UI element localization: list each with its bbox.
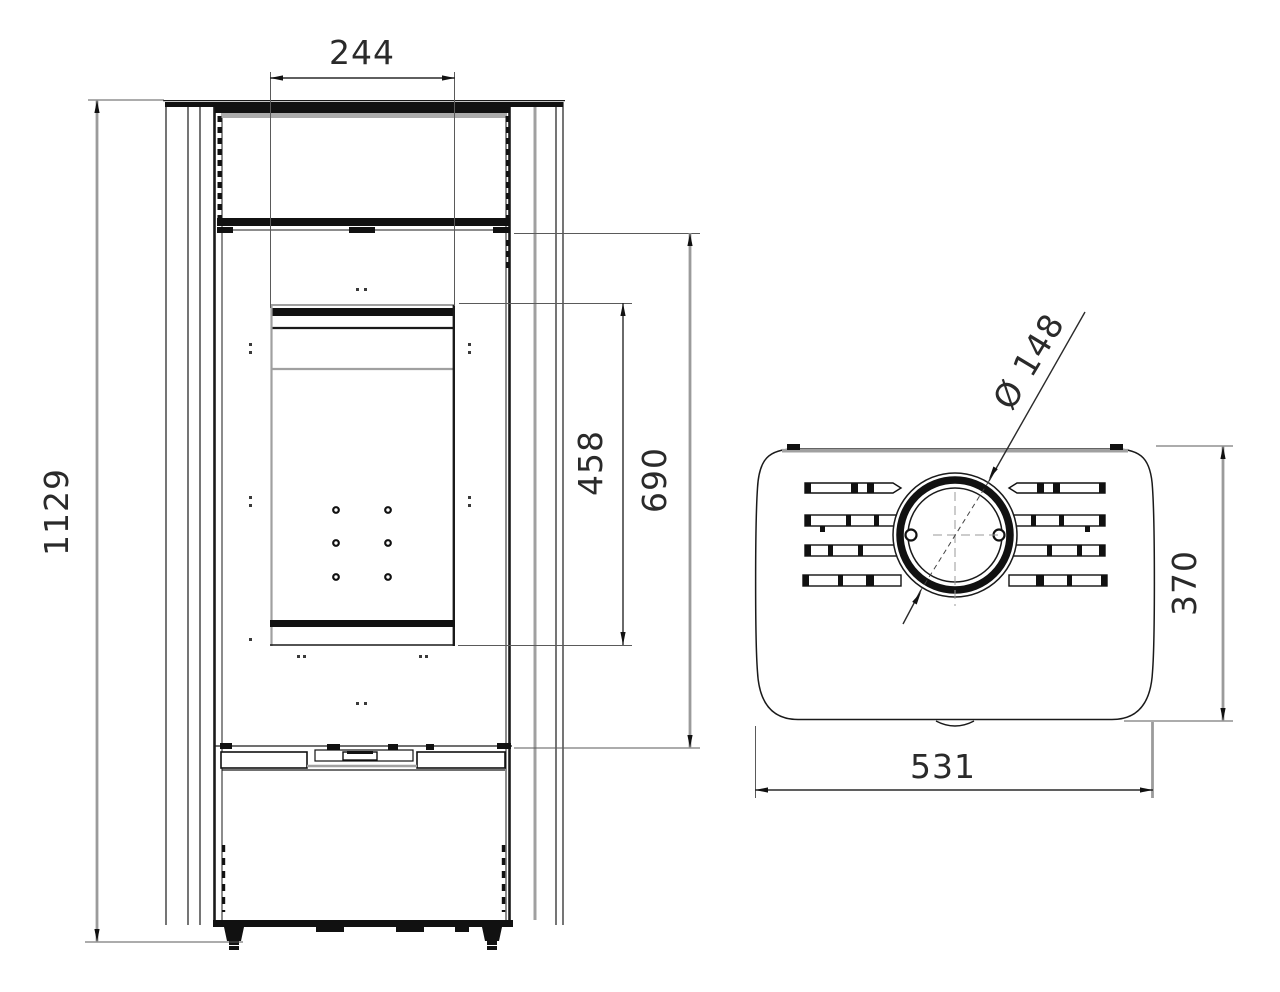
top-view <box>756 444 1155 726</box>
reference-ticks <box>249 288 471 705</box>
bottom-notch <box>936 721 974 726</box>
drawing-canvas: 244 1129 458 690 <box>0 0 1280 992</box>
flue-bolt-left <box>906 530 917 541</box>
dimension-drawing-svg: 244 1129 458 690 <box>0 0 1280 992</box>
pedestal-drawer <box>214 743 512 912</box>
dim-label-370: 370 <box>1165 550 1204 616</box>
dim-label-1129: 1129 <box>37 468 76 556</box>
dim-label-244: 244 <box>329 33 395 72</box>
right-handle-bar <box>417 752 505 768</box>
fire-door <box>270 305 455 646</box>
door-air-holes <box>333 507 391 580</box>
dim-label-458: 458 <box>571 430 610 496</box>
front-view <box>163 101 565 950</box>
right-foot <box>482 927 502 941</box>
left-foot <box>224 927 244 941</box>
top-left-tab <box>787 444 800 450</box>
upper-chamber <box>215 106 510 233</box>
top-right-tab <box>1110 444 1123 450</box>
dim-label-flue-diameter: Ø 148 <box>985 306 1072 416</box>
base-bar <box>213 920 513 927</box>
front-view-dimensions: 244 1129 458 690 <box>37 33 700 942</box>
dim-label-531: 531 <box>910 747 976 786</box>
left-handle-bar <box>221 752 307 768</box>
dim-label-690: 690 <box>635 447 674 513</box>
door-bottom-bar <box>270 620 455 627</box>
door-top-bar <box>271 308 455 316</box>
base-and-feet <box>213 920 513 950</box>
